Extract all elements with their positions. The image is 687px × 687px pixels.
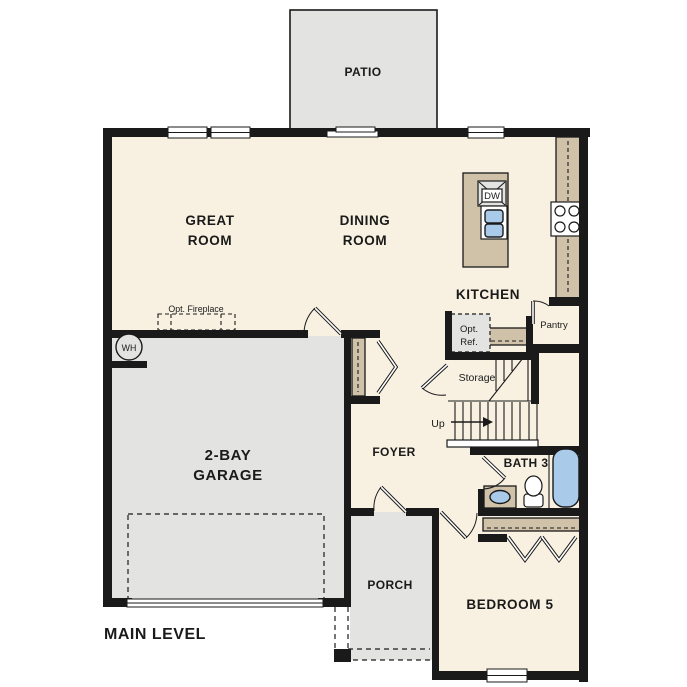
dishwasher-label: DW xyxy=(484,191,500,202)
bathtub-symbol xyxy=(553,449,579,507)
patio-label: PATIO xyxy=(345,65,382,79)
stair-landing-edge xyxy=(447,440,538,447)
plan-title: MAIN LEVEL xyxy=(104,626,206,643)
opt-ref-label-1: Opt. xyxy=(460,324,478,335)
porch-label: PORCH xyxy=(367,578,412,592)
bath-vanity-symbol xyxy=(484,486,516,508)
dishwasher-symbol: DW xyxy=(478,181,506,206)
up-label: Up xyxy=(431,418,445,430)
wall-bedroom5-left xyxy=(432,508,439,680)
wall-pantry-bottom xyxy=(526,344,588,353)
wall-stairs-right xyxy=(531,352,539,404)
wall-storage-top xyxy=(445,352,539,360)
kitchen-counter-lower xyxy=(488,328,527,345)
pantry-label: Pantry xyxy=(540,320,568,331)
bedroom5-closet-shelf xyxy=(483,518,580,531)
water-heater-symbol: WH xyxy=(116,334,142,360)
floor-plan: DW Opt. Ref. xyxy=(0,0,687,687)
opt-ref-label-2: Ref. xyxy=(460,337,477,348)
dining-room-label-1: DINING xyxy=(340,213,391,228)
kitchen-window xyxy=(468,127,504,138)
wall-bedroom5-closet-front xyxy=(478,534,507,542)
bedroom5-window xyxy=(487,669,527,682)
wall-pantry-top xyxy=(549,297,588,306)
garage-label-1: 2-BAY xyxy=(205,447,252,464)
wall-kitchen-stub xyxy=(445,311,452,356)
wall-garage-right xyxy=(344,334,351,607)
great-room-label-1: GREAT xyxy=(185,213,234,228)
garage-label-2: GARAGE xyxy=(193,467,262,484)
foyer-label: FOYER xyxy=(372,445,415,459)
porch-column xyxy=(334,649,351,662)
wall-foyer-south-left xyxy=(348,508,374,516)
great-room-label-2: ROOM xyxy=(188,233,232,248)
water-heater-label: WH xyxy=(122,343,137,353)
bath3-label: BATH 3 xyxy=(504,456,549,470)
wall-water-heater-stub xyxy=(107,361,147,368)
bedroom5-label: BEDROOM 5 xyxy=(466,597,553,612)
opt-fireplace-label: Opt. Fireplace xyxy=(168,304,223,314)
floor-plan-svg: DW Opt. Ref. xyxy=(0,0,687,687)
island-sink-symbol xyxy=(481,206,507,239)
bedroom5-floor-area xyxy=(437,510,583,676)
stove-symbol xyxy=(551,202,582,236)
storage-label: Storage xyxy=(459,372,496,384)
great-room-window-2 xyxy=(211,127,250,138)
great-room-window-1 xyxy=(168,127,207,138)
dining-room-label-2: ROOM xyxy=(343,233,387,248)
garage-overhead-door xyxy=(127,599,323,607)
wall-bath3-bottom xyxy=(478,508,588,516)
kitchen-label: KITCHEN xyxy=(456,287,520,302)
toilet-symbol xyxy=(524,476,543,507)
optional-refrigerator-symbol: Opt. Ref. xyxy=(451,314,490,352)
wall-right-exterior xyxy=(579,128,588,682)
